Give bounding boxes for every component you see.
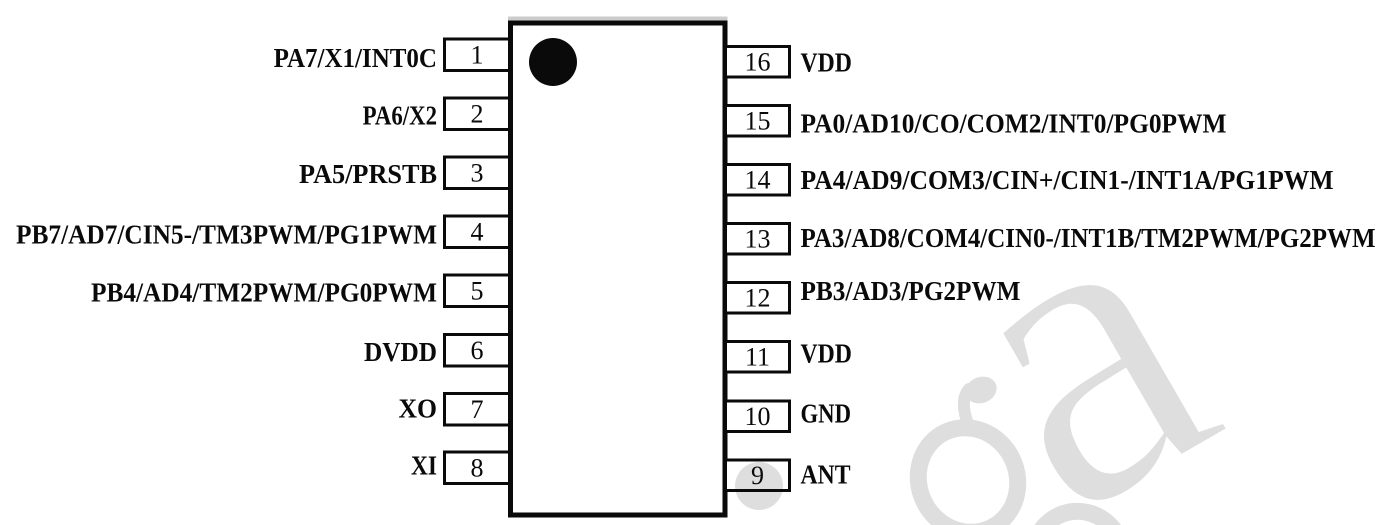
svg-text:6: 6 bbox=[471, 336, 484, 365]
svg-text:DVDD: DVDD bbox=[364, 337, 437, 367]
svg-text:VDD: VDD bbox=[801, 47, 852, 77]
svg-text:16: 16 bbox=[745, 48, 771, 77]
svg-text:10: 10 bbox=[745, 402, 771, 431]
svg-text:PA3/AD8/COM4/CIN0-/INT1B/TM2PW: PA3/AD8/COM4/CIN0-/INT1B/TM2PWM/PG2PWM bbox=[801, 223, 1376, 253]
svg-text:XI: XI bbox=[411, 451, 437, 481]
svg-text:8: 8 bbox=[471, 453, 484, 482]
svg-text:13: 13 bbox=[745, 225, 771, 254]
svg-text:PA5/PRSTB: PA5/PRSTB bbox=[299, 159, 437, 189]
svg-text:1: 1 bbox=[471, 40, 484, 69]
svg-text:ANT: ANT bbox=[801, 460, 851, 490]
svg-text:7: 7 bbox=[471, 395, 484, 424]
svg-text:PB3/AD3/PG2PWM: PB3/AD3/PG2PWM bbox=[801, 276, 1021, 306]
svg-text:VDD: VDD bbox=[801, 339, 852, 369]
svg-text:11: 11 bbox=[745, 343, 770, 372]
svg-text:PB4/AD4/TM2PWM/PG0PWM: PB4/AD4/TM2PWM/PG0PWM bbox=[91, 278, 437, 308]
svg-text:4: 4 bbox=[471, 217, 484, 246]
svg-text:PA7/X1/INT0C: PA7/X1/INT0C bbox=[274, 43, 437, 73]
svg-text:5: 5 bbox=[471, 276, 484, 305]
svg-text:2: 2 bbox=[471, 99, 484, 128]
svg-text:XO: XO bbox=[399, 394, 438, 424]
svg-text:3: 3 bbox=[471, 158, 484, 187]
svg-text:14: 14 bbox=[745, 166, 771, 195]
svg-text:9: 9 bbox=[751, 461, 764, 490]
svg-text:PA4/AD9/COM3/CIN+/CIN1-/INT1A/: PA4/AD9/COM3/CIN+/CIN1-/INT1A/PG1PWM bbox=[801, 165, 1334, 195]
svg-text:PA0/AD10/CO/COM2/INT0/PG0PWM: PA0/AD10/CO/COM2/INT0/PG0PWM bbox=[801, 108, 1227, 138]
svg-text:12: 12 bbox=[745, 284, 771, 313]
svg-text:PA6/X2: PA6/X2 bbox=[363, 101, 437, 131]
svg-text:15: 15 bbox=[745, 107, 771, 136]
svg-text:PB7/AD7/CIN5-/TM3PWM/PG1PWM: PB7/AD7/CIN5-/TM3PWM/PG1PWM bbox=[16, 220, 437, 250]
svg-text:GND: GND bbox=[801, 399, 852, 429]
